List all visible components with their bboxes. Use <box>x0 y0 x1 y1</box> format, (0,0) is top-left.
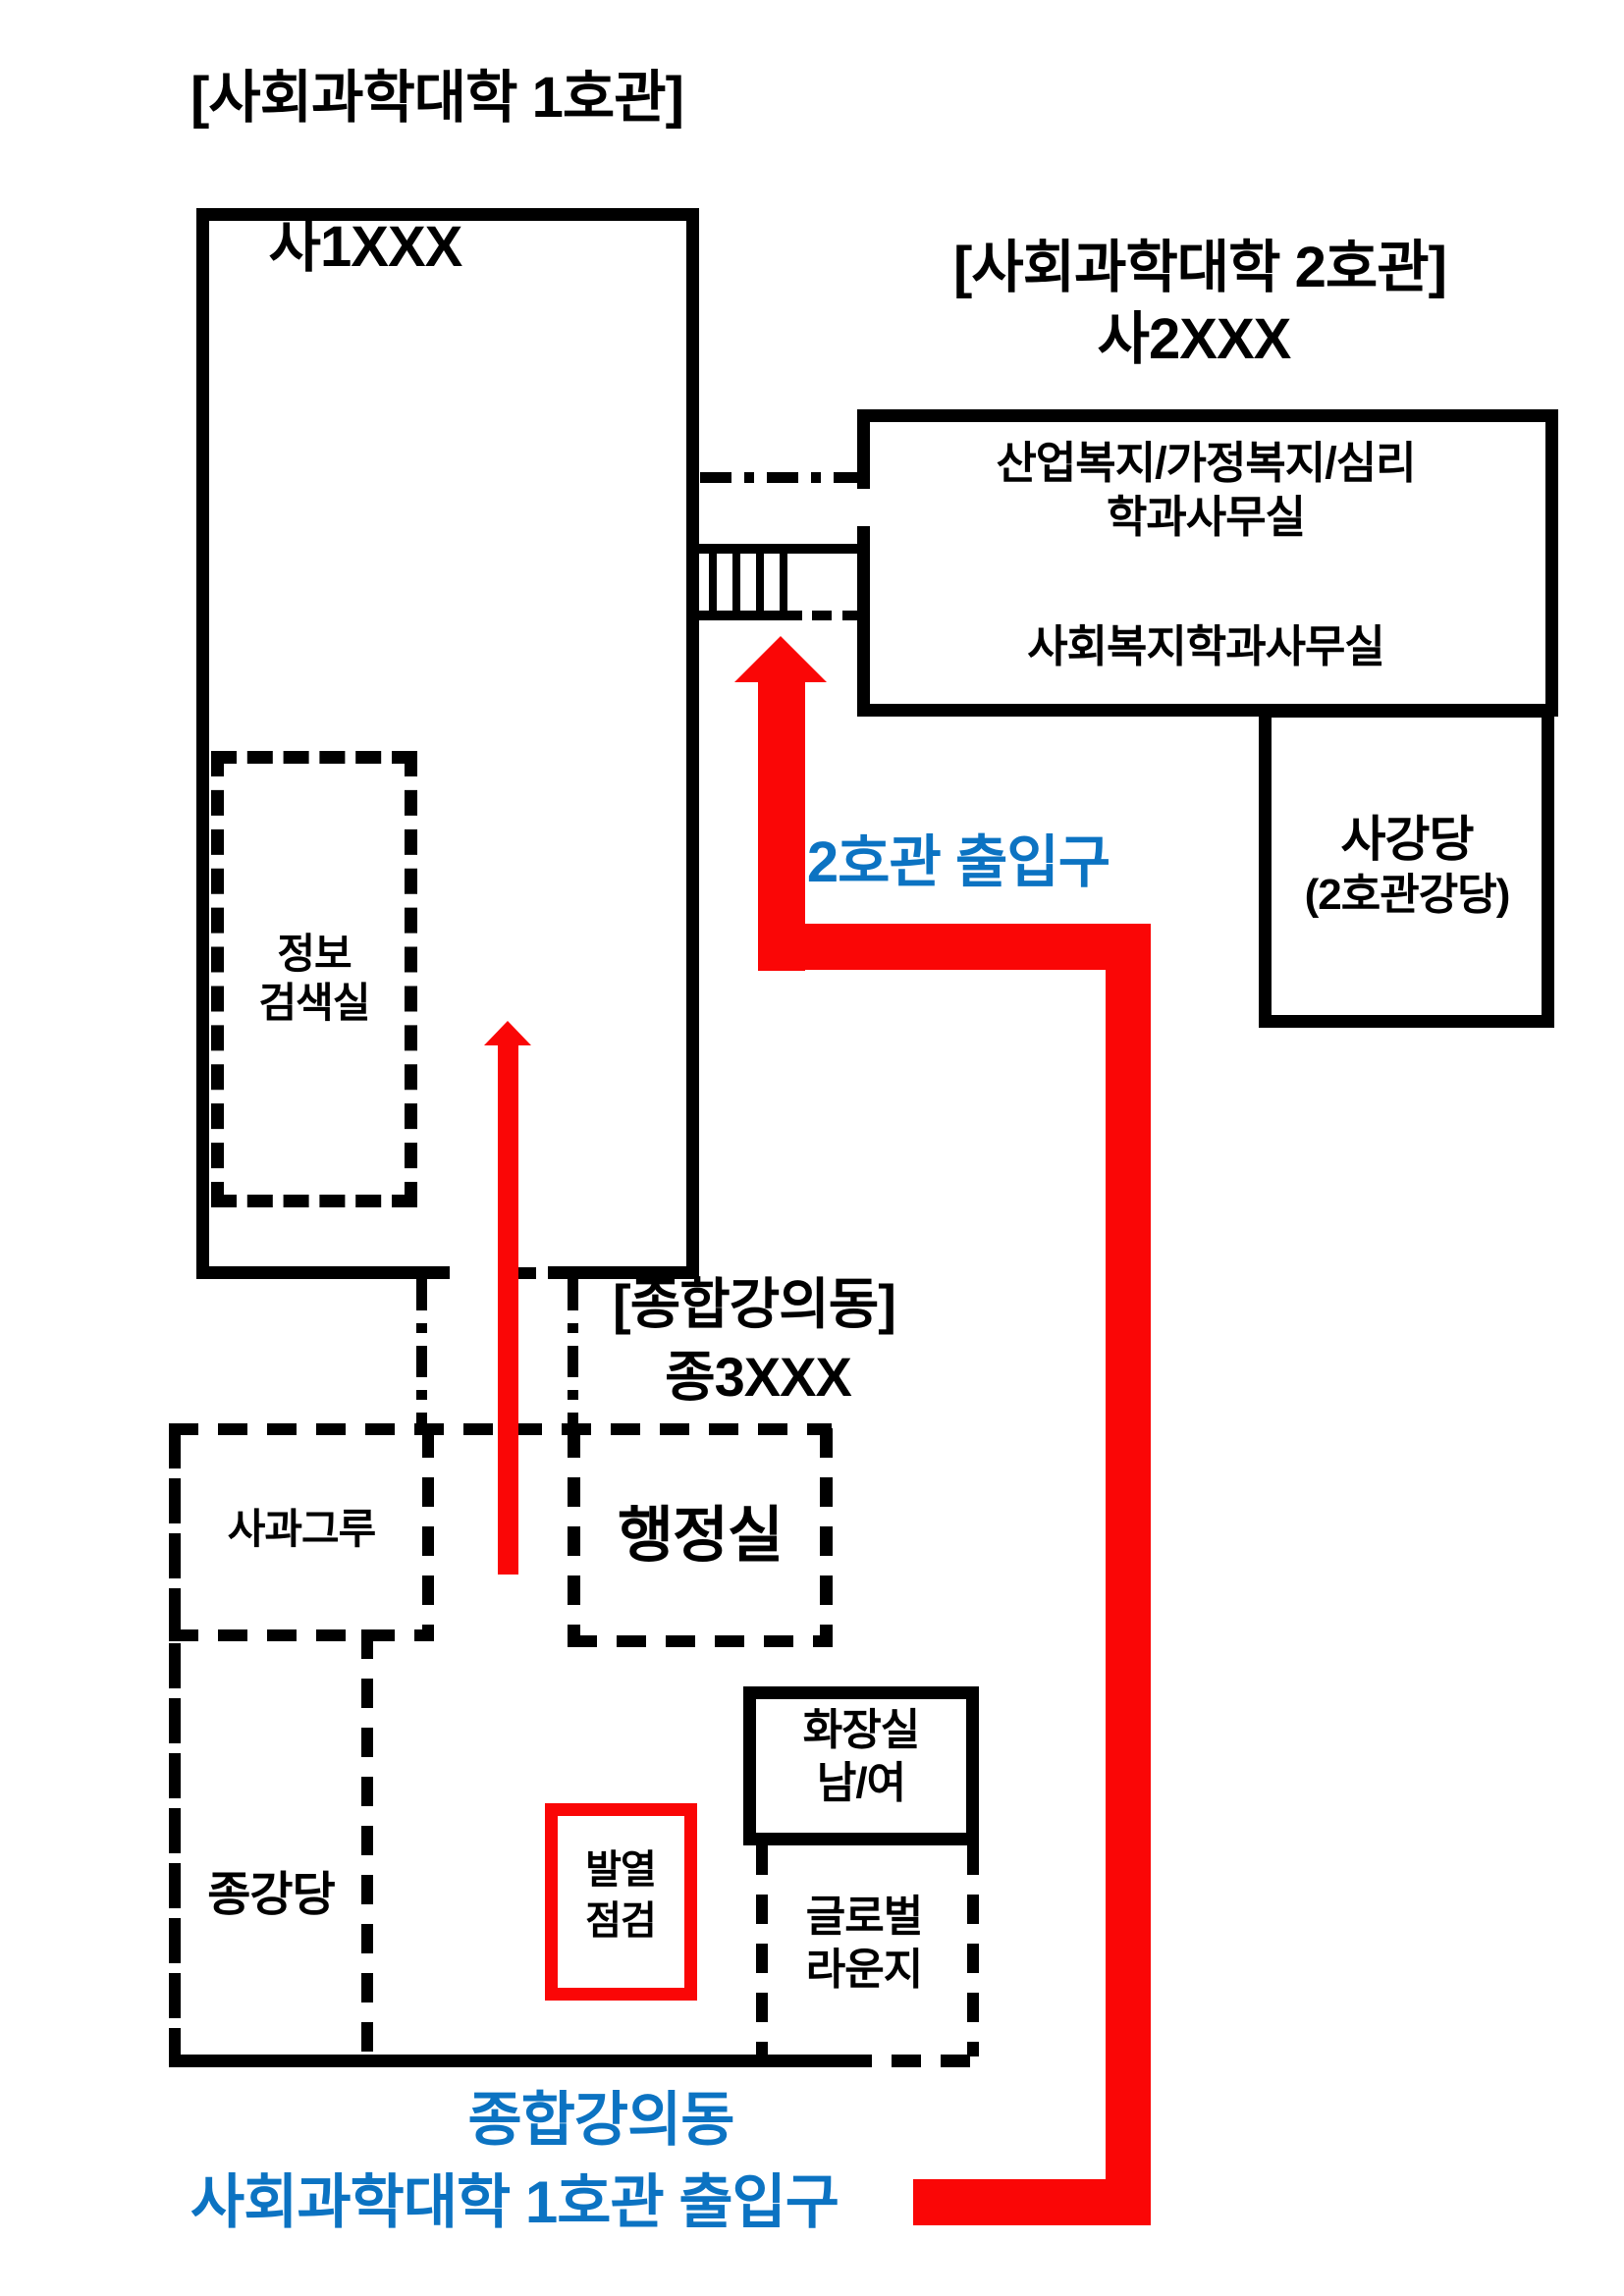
sagwageuru-bottom-edge <box>169 1629 434 1641</box>
corridor2-right-line <box>568 1279 578 1428</box>
stairs-bottom-door-dash <box>812 611 832 620</box>
route-segment-right-vertical <box>1106 924 1151 2225</box>
stair-step-line <box>732 546 740 611</box>
welfare-office-label: 사회복지학과사무실 <box>1027 623 1384 669</box>
sagwageuru-label: 사과그루 <box>228 1508 376 1551</box>
route-segment-top-horizontal <box>758 924 1151 970</box>
building2-title: [사회과학대학 2호관] <box>953 239 1446 298</box>
fever-check-label-line2: 점검 <box>585 1900 656 1942</box>
fever-check-label-line1: 발열 <box>585 1849 656 1891</box>
jonggangdang-label: 종강당 <box>207 1871 334 1920</box>
admin-office-bottom-edge <box>568 1635 833 1647</box>
entrance2-label: 2호관 출입구 <box>807 833 1110 893</box>
dept-office-label-line2: 학과사무실 <box>1107 494 1305 540</box>
building2-door-gap <box>857 489 870 526</box>
building1-code-label: 사1XXX <box>269 218 462 278</box>
global-lounge-label-line1: 글로벌 <box>806 1895 922 1940</box>
admin-office-label: 행정실 <box>618 1504 783 1568</box>
stairs-bottom-line <box>699 611 802 620</box>
sagwageuru-right-edge <box>422 1428 434 1641</box>
footer-entrance-label-line2: 사회과학대학 1호관 출입구 <box>190 2171 839 2233</box>
global-lounge-right-edge <box>967 1845 979 2056</box>
info-search-room-label-line1: 정보 <box>277 933 351 976</box>
corridor-dashdot-line <box>700 472 857 483</box>
lecture-hall-bottom-boundary-dashed <box>842 2055 979 2067</box>
stairs-top-line <box>699 544 857 554</box>
global-lounge-label-line2: 라운지 <box>806 1948 922 1993</box>
info-search-room-label-line2: 검색실 <box>259 982 370 1025</box>
admin-office-right-edge <box>820 1428 833 1647</box>
lecture-hall-left-boundary <box>169 1423 181 2067</box>
global-lounge-left-edge <box>756 1845 768 2056</box>
stair-step-line <box>709 546 717 611</box>
stairs-bottom-door-dash <box>842 611 857 620</box>
dept-office-label-line1: 산업복지/가정복지/심리 <box>996 440 1415 486</box>
route-segment-building1-vertical <box>498 1044 518 1575</box>
lecture-hall-bottom-boundary-solid <box>169 2055 842 2067</box>
lecture-hall-code-label: 종3XXX <box>665 1349 851 1407</box>
footer-entrance-label-line1: 종합강의동 <box>468 2089 734 2151</box>
route-segment-bottom-horizontal <box>913 2179 1151 2225</box>
corridor2-left-line <box>416 1279 427 1428</box>
stair-step-line <box>756 546 764 611</box>
restroom-label-line1: 화장실 <box>803 1708 919 1753</box>
auditorium2-label: 사강당 <box>1341 814 1474 866</box>
campus-floor-map: [사회과학대학 1호관] 사1XXX 정보 검색실 [사회과학대학 2호관] 사… <box>0 0 1624 2296</box>
auditorium2-sublabel: (2호관강당) <box>1305 873 1510 918</box>
building1-title: [사회과학대학 1호관] <box>190 69 683 129</box>
restroom-label-line2: 남/여 <box>817 1761 905 1806</box>
stair-step-line <box>780 546 787 611</box>
lecture-hall-title: [종합강의동] <box>613 1276 895 1334</box>
jonggangdang-right-edge <box>361 1629 373 2066</box>
building2-code-label: 사2XXX <box>1098 310 1291 370</box>
route-arrowhead-building1 <box>484 1021 531 1045</box>
route-arrowhead-building2 <box>734 636 827 682</box>
admin-office-left-edge <box>568 1428 580 1647</box>
